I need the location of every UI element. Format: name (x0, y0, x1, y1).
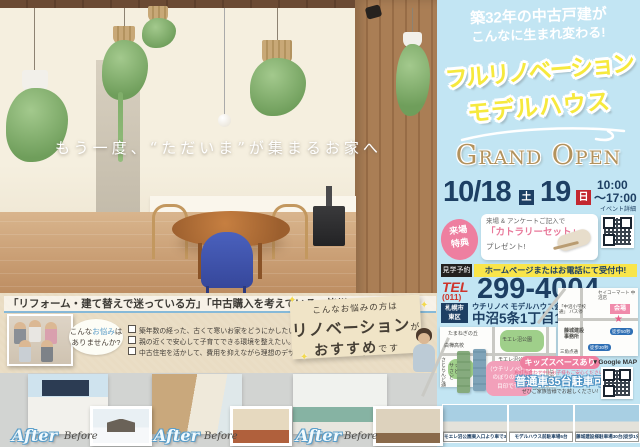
qr-corner (603, 217, 615, 229)
blue-chair (201, 232, 253, 288)
person-figure (19, 340, 31, 362)
after-photo-interior (152, 374, 242, 434)
checklist-item: 親の近くで安心して子育てできる環境を整えたい。 (128, 336, 295, 346)
recommend-card: こんなお悩みの方は リノベーションが おすすめです (290, 295, 423, 360)
access-caption: 藤城建設様駐車場30台(徒歩1分) (576, 433, 638, 441)
checklist-item: 築年数の経った、古くて寒いお家をどうにかしたい。 (128, 325, 302, 335)
google-map-label: ▼Google MAP (592, 359, 637, 366)
nobori-flag-green (457, 351, 470, 393)
before-label: Before (204, 431, 238, 442)
gift-line1: 来場 & アンケートご記入で (486, 218, 565, 225)
walk-badge1: 徒歩50秒 (610, 328, 633, 335)
lamp-cord (224, 8, 225, 116)
hero-tagline: もう一度、“ただいま”が集まるお家へ (0, 140, 437, 157)
checkbox-icon (128, 336, 136, 344)
map-road (580, 288, 583, 356)
reserve-badge: 見学予約 (441, 264, 472, 277)
grand-open-title: Grand Open (437, 140, 640, 171)
access-caption: モエレ沼公園東入口より車で3分 (444, 433, 506, 441)
worry-bubble: こんなお悩みは ありませんか? (69, 319, 123, 355)
greeter-figure (413, 344, 435, 372)
table-leg (258, 243, 262, 279)
access-photo: モエレ沼公園東入口より車で3分 (442, 404, 508, 443)
gift-box: 来場 & アンケートご記入で 「カトラリーセット」 プレゼント! (481, 214, 598, 260)
checkbox-icon (128, 325, 136, 333)
detail-map: セイコーマート 中沼店 「中沼小学校通」 バス停 会場 ★ 藤城建設 事務所 徒… (558, 288, 638, 356)
hanging-plant-icon (142, 18, 176, 48)
map-venue-badge: 会場 (610, 304, 630, 314)
kids-note: お打ち合わせ中もお子様もご安心ください♪ (514, 370, 606, 375)
map-label-road: 三角点通 (560, 349, 578, 354)
bubble-line2: ありませんか? (69, 337, 123, 348)
before-photo-bath (373, 406, 443, 446)
sparkle-icon: ✦ (288, 295, 296, 306)
after-label: After (296, 426, 341, 445)
greeter-face (418, 333, 430, 344)
sparkle-icon: ✦ (300, 352, 308, 363)
qr-code-map (601, 367, 633, 399)
plant-cord (34, 8, 35, 72)
parking-info: 普通車35台駐車可 (514, 376, 606, 389)
after-label: After (12, 426, 57, 445)
access-photo: モデルハウス前駐車場5台 (508, 404, 574, 443)
hero-photo: もう一度、“ただいま”が集まるお家へ (0, 0, 437, 300)
hanging-plant-icon (250, 58, 306, 116)
plant-cord (412, 8, 413, 34)
map-label-park: モエレ沼公園 (502, 337, 532, 343)
stove-pipe (326, 186, 332, 208)
date-day2-badge: 日 (576, 190, 591, 205)
map-label-road-left: さとらんど通 (440, 357, 446, 387)
person-figure (29, 320, 41, 342)
event-qr-label: イベント詳細 (600, 207, 636, 214)
hanging-plant-icon (102, 40, 148, 100)
qr-corner (603, 234, 615, 246)
date-month-day: 10/18 (443, 176, 511, 209)
qr-corner (620, 217, 632, 229)
time-to: 〜17:00 (594, 192, 637, 206)
star-icon: ★ (614, 314, 623, 325)
before-photo-exterior (90, 406, 152, 446)
qr-corner (603, 385, 615, 397)
invite-note: ぜひご家族皆様でお越しください! (514, 390, 606, 396)
pendant-lamp-icon (218, 114, 231, 127)
person-figure (41, 340, 53, 362)
map-road (558, 318, 638, 321)
stove (313, 206, 345, 246)
checkbox-icon (128, 347, 136, 355)
date-day1-badge: 土 (519, 190, 534, 205)
sparkle-icon: ✦ (420, 300, 428, 311)
flyer: もう一度、“ただいま”が集まるお家へ 「リフォーム・建て替えで迷っている方」「中… (0, 0, 640, 447)
walk-badge2: 徒歩30秒 (588, 344, 611, 351)
nobori-flag-blue (473, 349, 486, 391)
plant-cord (277, 8, 278, 42)
map-label-seicomart: セイコーマート 中沼店 (598, 290, 636, 301)
access-caption: モデルハウス前駐車場5台 (510, 433, 572, 441)
kids-space-bar: キッズスペースあり (520, 356, 600, 369)
qr-code-event (601, 215, 634, 248)
access-photo: 藤城建設様駐車場30台(徒歩1分) (574, 404, 640, 443)
tel-area: (011) (442, 293, 461, 303)
gift-line3: プレゼント! (486, 243, 526, 252)
bubble-line1: こんなお悩みは (69, 326, 123, 337)
plant-cord (124, 8, 125, 28)
map-label-school: 白樺高校 (444, 343, 464, 349)
qr-corner (619, 369, 631, 381)
map-label-fujishiro: 藤城建設 事務所 (564, 328, 590, 340)
map-label-onion: たまねぎの丘 (448, 331, 478, 337)
before-label: Before (64, 431, 98, 442)
qr-corner (603, 369, 615, 381)
date-19: 19 (540, 176, 570, 209)
before-label: Before (344, 431, 378, 442)
before-photo-interior (230, 406, 292, 446)
city-badge: 札幌市 東区 (441, 303, 468, 323)
map-label-busstop: 「中沼小学校通」 バス停 (559, 304, 593, 315)
family-photo (7, 314, 73, 366)
after-label: After (154, 426, 199, 445)
